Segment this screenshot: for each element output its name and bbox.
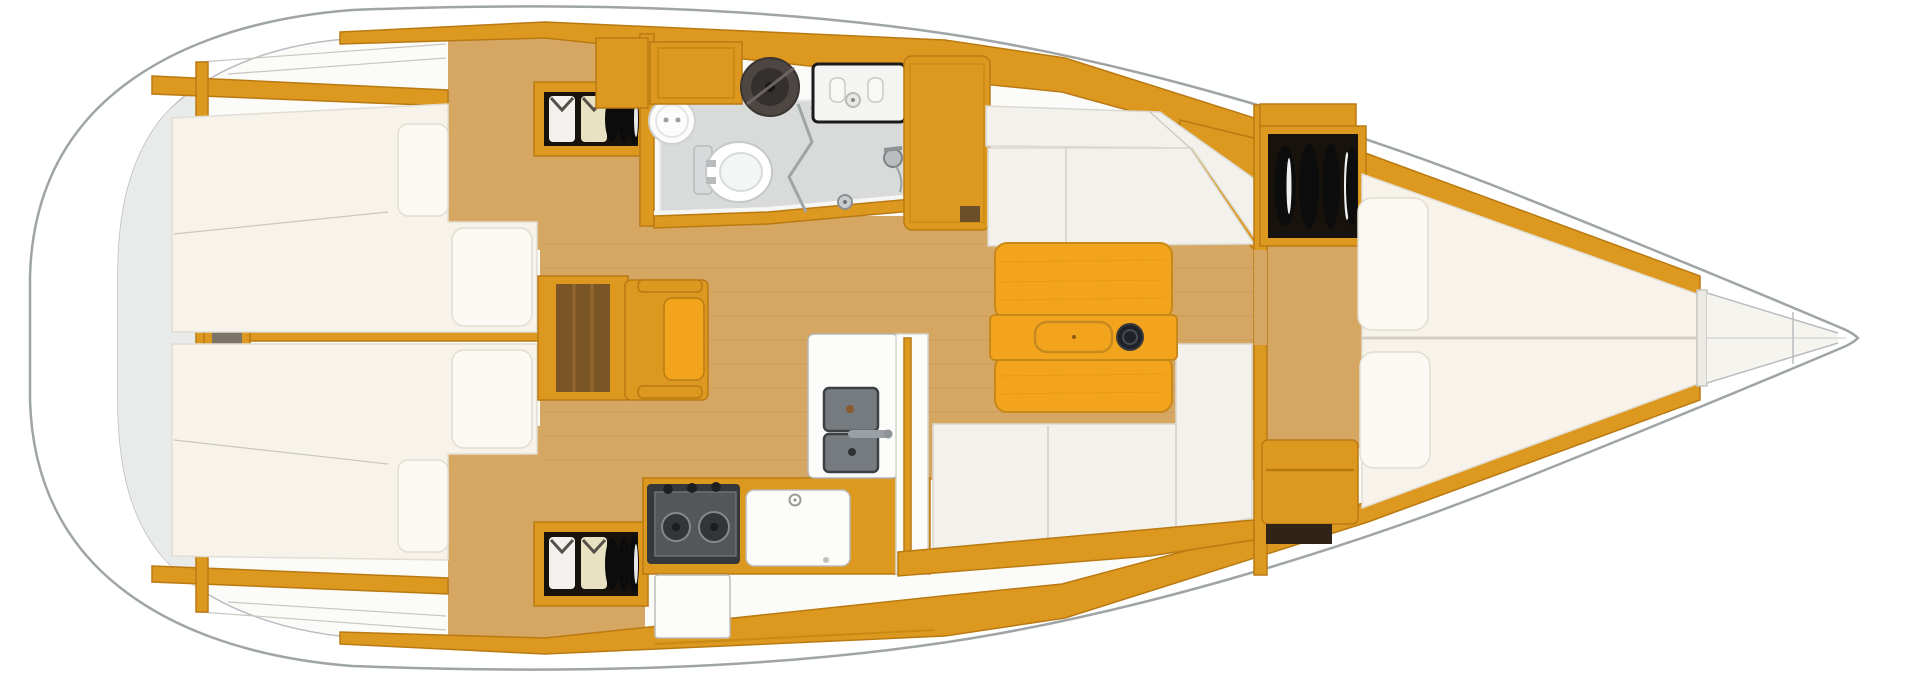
round-washbasin	[649, 98, 695, 144]
pillow	[1360, 352, 1430, 468]
aft-cabin-divider	[250, 332, 540, 341]
toilet	[694, 142, 772, 202]
stove-two-burner	[647, 482, 740, 564]
head-side-cabinet	[904, 56, 990, 230]
shirt-on-hanger	[549, 96, 575, 142]
folded-gear-disc	[1274, 146, 1296, 226]
pot-holder-knob	[687, 483, 697, 493]
folded-gear-disc	[1346, 146, 1358, 226]
toilet-bowl	[720, 153, 762, 191]
disc-highlight	[1287, 158, 1292, 214]
folded-gear-disc	[1299, 144, 1319, 228]
pot-holder-knob	[663, 484, 673, 494]
steps-well	[556, 284, 610, 392]
folded-gear-disc	[618, 537, 630, 591]
pillow	[398, 460, 448, 552]
tray-dot	[1072, 335, 1076, 339]
floorplan-canvas	[0, 0, 1920, 676]
pillow	[452, 350, 532, 448]
tap-lever	[830, 78, 845, 102]
table-leaf-port	[995, 356, 1172, 412]
shirt-on-hanger	[581, 537, 607, 589]
shirt-on-hanger	[549, 537, 575, 589]
cabinet-latch	[960, 206, 980, 222]
sink-drain	[846, 405, 854, 413]
head-sink-unit	[813, 64, 905, 122]
galley-grab-rail	[904, 338, 911, 570]
saloon-table	[990, 243, 1177, 412]
cup-holder	[1117, 324, 1143, 350]
tap-lever	[868, 78, 883, 102]
disc-highlight	[634, 544, 638, 584]
tap-dot	[676, 118, 681, 123]
round-basin-dark	[741, 58, 799, 116]
pillow	[452, 228, 532, 326]
companionway	[538, 276, 708, 400]
forward-locker	[1260, 126, 1366, 246]
locker-shelf	[1260, 104, 1356, 128]
sink-drain	[848, 448, 856, 456]
engine-box-panel	[664, 298, 704, 380]
grab-rail	[638, 386, 702, 398]
folded-gear-disc	[605, 538, 619, 590]
berth-end-cap	[1697, 290, 1707, 386]
bulkhead-door-opening	[1254, 250, 1267, 345]
head-counter-panel	[596, 38, 648, 108]
pot-holder-knob	[711, 482, 721, 492]
double-sink-unit	[808, 334, 898, 478]
drain-dot	[843, 200, 847, 204]
fridge-top-lid	[746, 490, 850, 566]
oven-door	[655, 575, 730, 638]
boat-floorplan	[0, 0, 1920, 676]
pillow	[398, 124, 448, 216]
counter-end-panel	[896, 334, 928, 574]
step-shadow	[1266, 524, 1332, 544]
hanging-locker-port	[534, 522, 648, 606]
hinge-dot	[823, 557, 829, 563]
pillow	[1358, 198, 1428, 330]
folded-gear-disc	[1322, 144, 1340, 228]
head-counter-box	[650, 42, 742, 104]
tap-dot	[664, 118, 669, 123]
grab-rail	[638, 280, 702, 292]
